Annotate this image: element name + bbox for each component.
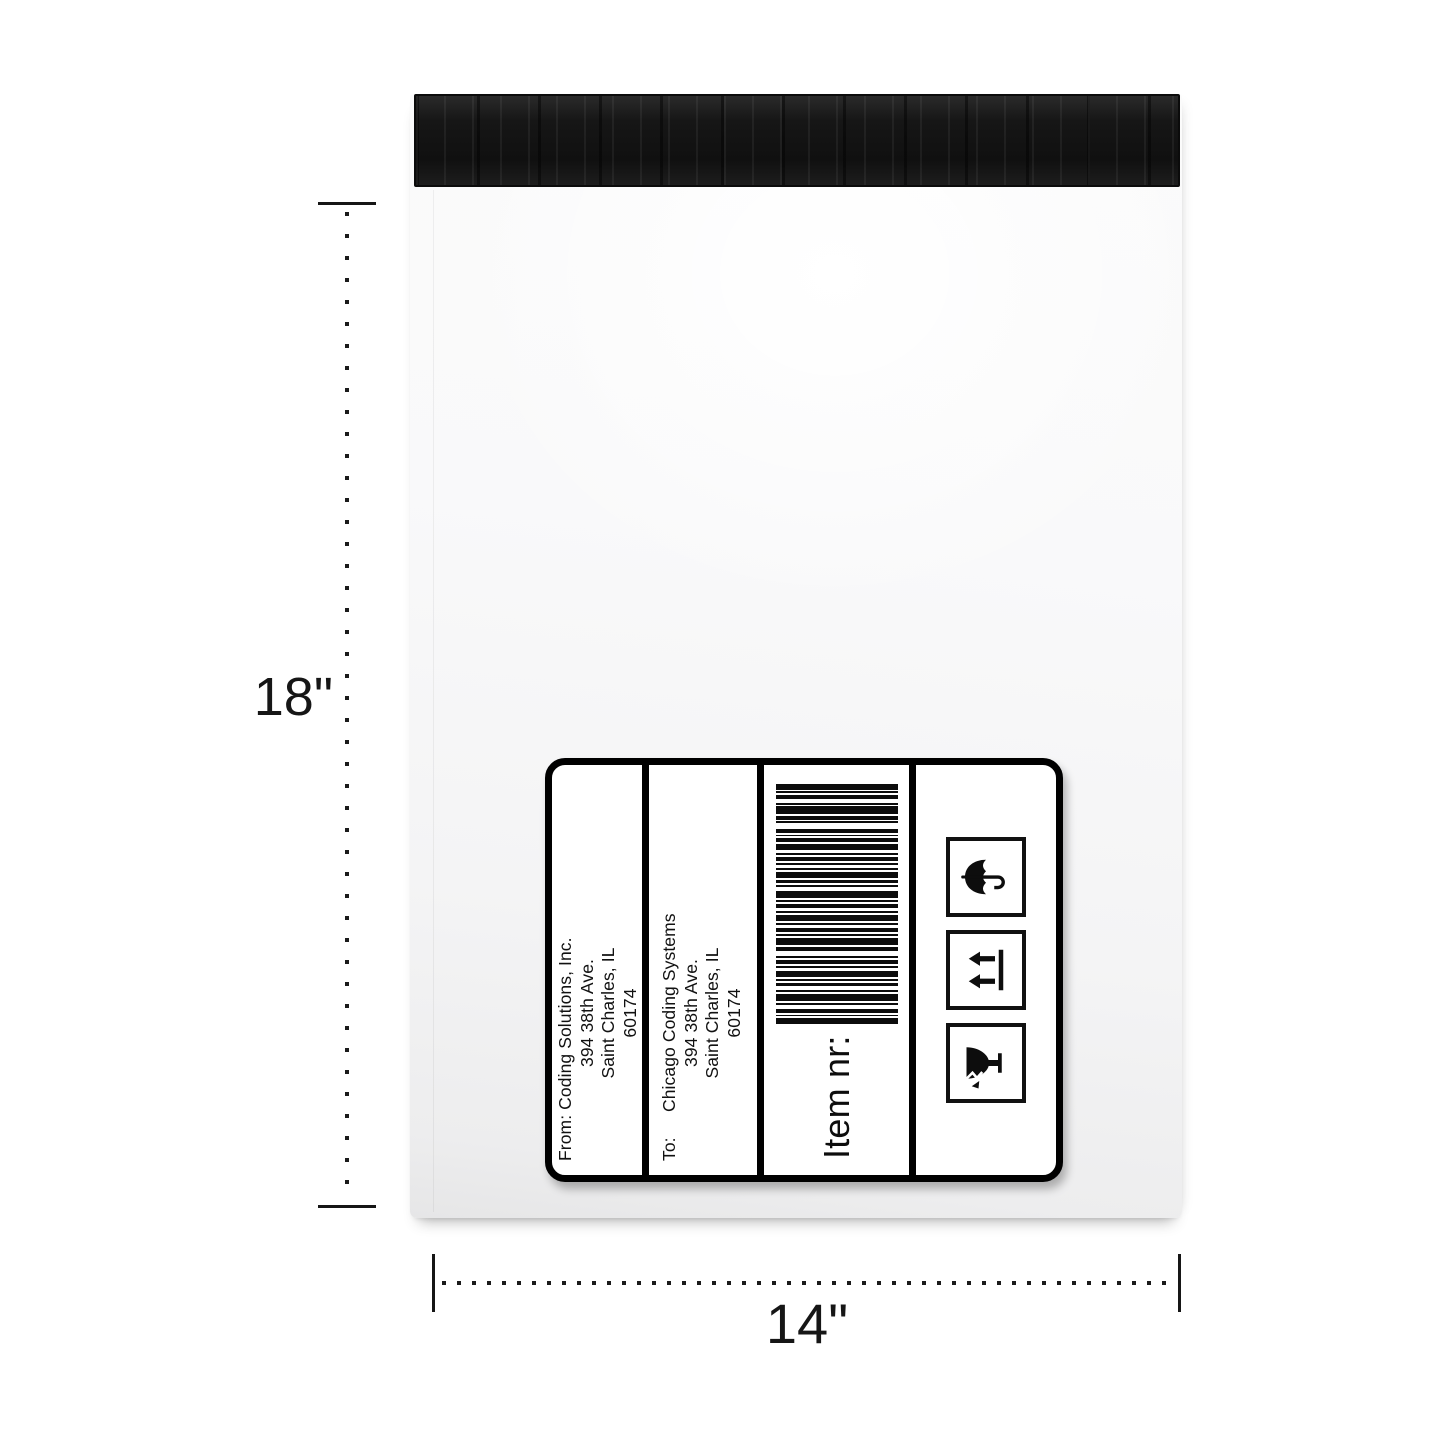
to-address-section: To: Chicago Coding Systems 394 38th Ave.… [649,765,757,1175]
from-city: Saint Charles, IL [598,911,620,1115]
product-image: 18" 14" From: Coding Solutions, Inc. 394… [0,0,1445,1445]
barcode [776,784,898,1024]
label-divider [909,765,916,1175]
envelope-seam [433,190,434,1212]
from-name: Coding Solutions, Inc. [555,937,575,1109]
this-way-up-icon [946,930,1026,1010]
from-prefix: From: [555,1115,577,1161]
width-dim-dotted-line [442,1281,1174,1285]
label-divider [757,765,764,1175]
item-number-label: Item nr: [816,1035,858,1175]
to-city: Saint Charles, IL [702,911,724,1115]
to-name: Chicago Coding Systems [659,913,679,1112]
height-dimension-value: 18" [218,668,333,726]
handling-icons-section [916,765,1056,1175]
to-street: 394 38th Ave. [681,911,703,1115]
height-dim-bottom-cap [318,1205,376,1208]
fragile-icon [946,1023,1026,1103]
adhesive-flap-strip [414,94,1180,187]
to-zip: 60174 [724,911,746,1115]
to-prefix: To: [659,1117,681,1161]
poly-mailer-envelope: From: Coding Solutions, Inc. 394 38th Av… [410,94,1182,1218]
from-address-section: From: Coding Solutions, Inc. 394 38th Av… [552,765,642,1175]
width-dimension-value: 14" [742,1294,872,1354]
to-line: To: Chicago Coding Systems [659,773,681,1161]
width-dim-left-cap [432,1254,435,1312]
from-line: From: Coding Solutions, Inc. [555,773,577,1161]
height-dim-top-cap [318,202,376,205]
barcode-section: Item nr: [764,765,909,1175]
height-dim-dotted-line [345,212,349,1198]
keep-dry-icon [946,837,1026,917]
width-dim-right-cap [1178,1254,1181,1312]
from-street: 394 38th Ave. [577,911,599,1115]
label-divider [642,765,649,1175]
shipping-label: From: Coding Solutions, Inc. 394 38th Av… [545,758,1063,1182]
shipping-label-area: From: Coding Solutions, Inc. 394 38th Av… [545,758,1063,1182]
from-zip: 60174 [620,911,642,1115]
